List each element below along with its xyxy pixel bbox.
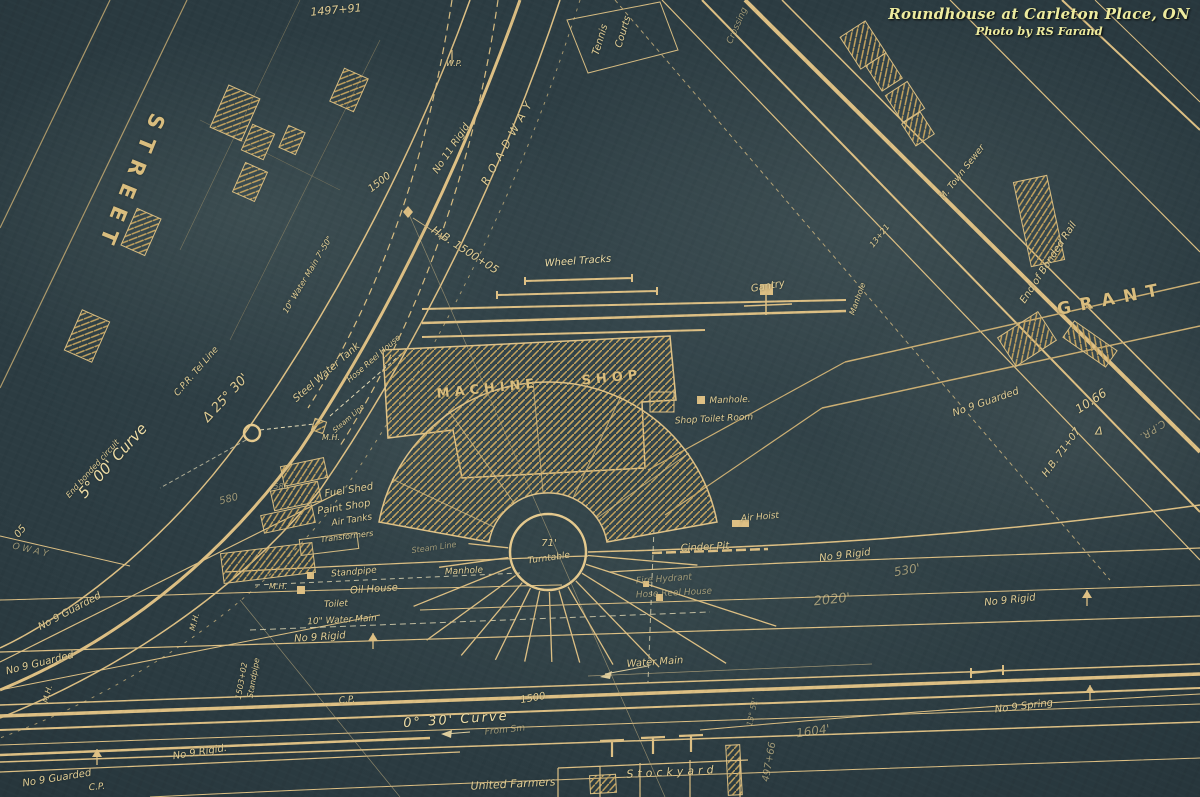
label-cp-southwest: C.P. (89, 783, 106, 793)
label-manhole-shop: Manhole. (709, 396, 750, 406)
label-num-586: 586 (273, 483, 288, 491)
label-mh-tank: M.H. (322, 434, 340, 442)
credit-title: Roundhouse at Carleton Place, ON (888, 5, 1190, 23)
label-turntable-size: 71' (541, 539, 556, 549)
credit-byline: Photo by RS Farand (888, 24, 1190, 38)
street-edges (0, 0, 380, 388)
blueprint-photo: 1497+91STREETTennisCourtsCrossingW.P.No … (0, 0, 1200, 797)
label-mh-west: M.H. (269, 583, 287, 591)
turntable-circle (510, 514, 586, 590)
blueprint-drawing (0, 0, 1200, 797)
turntable-spokes (414, 544, 777, 667)
label-cp-mid: C.P. (339, 696, 356, 706)
utility-lines (160, 212, 872, 797)
label-delta-east: Δ (1095, 426, 1103, 437)
photo-credit: Roundhouse at Carleton Place, ON Photo b… (888, 5, 1190, 38)
label-wp-marker: W.P. (446, 60, 462, 68)
label-toilet: Toilet (324, 600, 348, 610)
label-len-2020: 2020' (813, 592, 851, 609)
